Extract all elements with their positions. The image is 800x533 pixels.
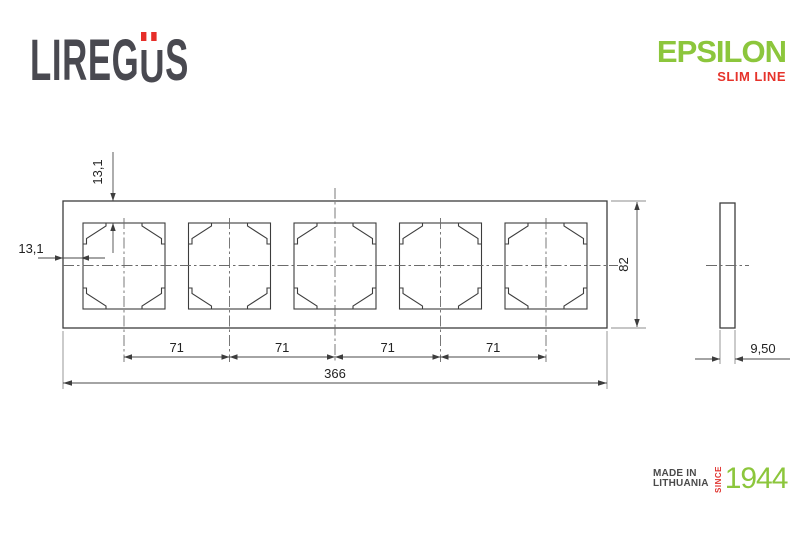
dimension-margin-top: 13,1 (90, 152, 116, 253)
dim-label-13-1-left: 13,1 (18, 241, 43, 256)
dimension-depth: 9,50 (695, 341, 790, 362)
technical-drawing: 366 71 71 71 71 82 (0, 0, 800, 533)
dim-label-366: 366 (324, 366, 346, 381)
dim-label-71-2: 71 (275, 340, 289, 355)
dim-label-82: 82 (616, 257, 631, 271)
dim-label-71-3: 71 (380, 340, 394, 355)
dimension-margin-left: 13,1 (18, 241, 105, 261)
dim-label-71-1: 71 (169, 340, 183, 355)
dim-label-71-4: 71 (486, 340, 500, 355)
dim-label-13-1-top: 13,1 (90, 159, 105, 184)
page: LIREGUS EPSILON SLIM LINE MADE IN LITHUA… (0, 0, 800, 533)
dimension-total-width: 366 (63, 366, 607, 386)
dim-label-9-50: 9,50 (750, 341, 775, 356)
dimension-height: 82 (616, 202, 640, 327)
